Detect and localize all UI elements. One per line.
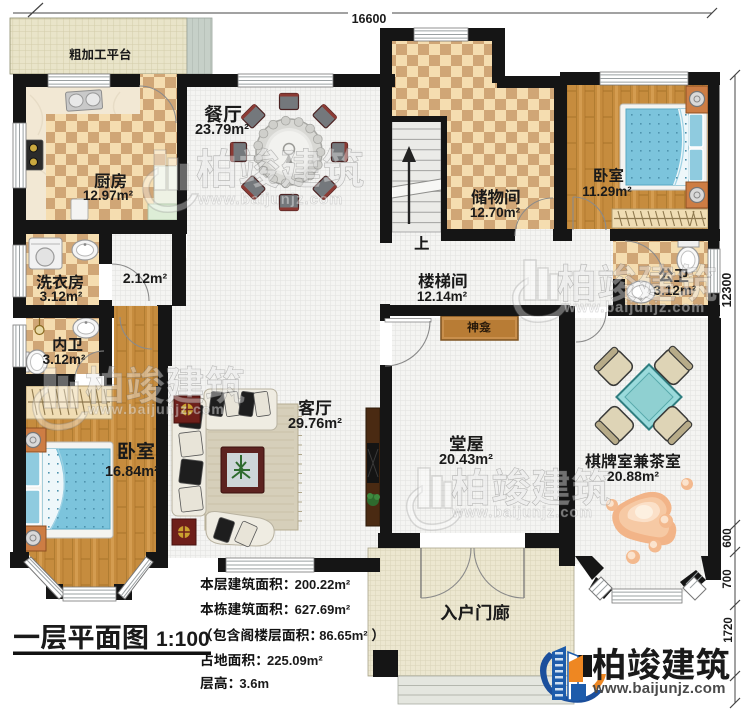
svg-text:700: 700 xyxy=(722,569,734,588)
svg-text:www.baijunjz.com: www.baijunjz.com xyxy=(563,300,705,316)
svg-text:12.70m²: 12.70m² xyxy=(470,205,521,220)
svg-text:www.baijunjz.com: www.baijunjz.com xyxy=(451,505,593,521)
svg-text:600: 600 xyxy=(722,528,734,547)
svg-text:86.65m²: 86.65m² xyxy=(319,628,368,643)
svg-text:1720: 1720 xyxy=(723,617,735,643)
svg-text:200.22m²: 200.22m² xyxy=(295,577,351,592)
svg-text:20.88m²: 20.88m² xyxy=(607,468,659,484)
svg-text:www.baijunjz.com: www.baijunjz.com xyxy=(197,191,343,208)
svg-text:2.12m²: 2.12m² xyxy=(123,270,168,286)
svg-text:www.baijunjz.com: www.baijunjz.com xyxy=(87,401,225,417)
svg-text:225.09m²: 225.09m² xyxy=(267,653,323,668)
svg-text:23.79m²: 23.79m² xyxy=(195,122,249,138)
svg-text:3.6m: 3.6m xyxy=(239,676,269,691)
svg-text:20.43m²: 20.43m² xyxy=(439,452,493,468)
svg-text:3.12m²: 3.12m² xyxy=(43,352,86,367)
svg-text:627.69m²: 627.69m² xyxy=(295,602,351,617)
svg-text:16.84m²: 16.84m² xyxy=(105,464,159,480)
svg-text:www.baijunjz.com: www.baijunjz.com xyxy=(592,680,726,697)
svg-text:12.97m²: 12.97m² xyxy=(83,188,134,203)
svg-text:3.12m²: 3.12m² xyxy=(40,289,83,304)
svg-text:29.76m²: 29.76m² xyxy=(288,416,342,432)
svg-text:1:100: 1:100 xyxy=(156,628,210,651)
svg-text:16600: 16600 xyxy=(352,12,387,26)
svg-text:11.29m²: 11.29m² xyxy=(582,184,632,199)
svg-text:12300: 12300 xyxy=(720,273,734,308)
svg-text:12.14m²: 12.14m² xyxy=(417,289,468,304)
